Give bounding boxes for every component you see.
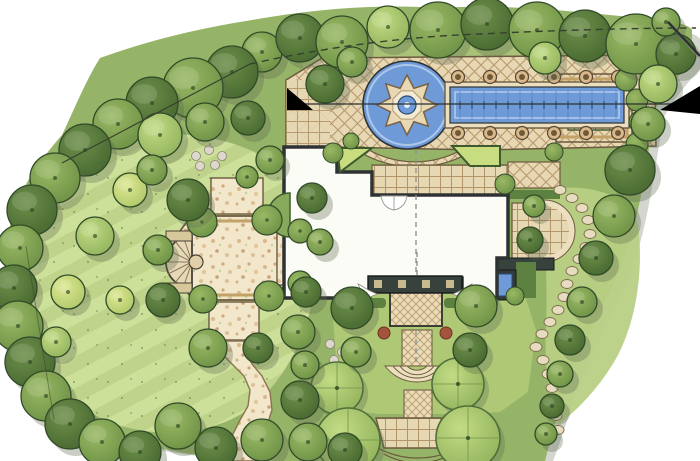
pebble	[218, 152, 227, 161]
planter-plant	[487, 130, 493, 136]
tree-trunk-dot	[214, 446, 218, 450]
site-plan-drawing	[0, 0, 700, 461]
tree-trunk-dot	[306, 440, 310, 444]
pool-jet	[555, 101, 557, 109]
tree-highlight	[2, 231, 25, 248]
pool-jet	[495, 101, 497, 109]
tree-trunk-dot	[558, 372, 562, 376]
pebble	[196, 162, 205, 171]
tree-highlight	[416, 10, 444, 31]
tree-highlight	[142, 119, 164, 136]
tree-trunk-dot	[303, 363, 307, 367]
stepping-stone	[561, 280, 573, 289]
tree-trunk-dot	[150, 168, 154, 172]
tree-trunk-dot	[30, 208, 34, 212]
shrub-ball	[545, 143, 563, 161]
tree-trunk-dot	[28, 360, 32, 364]
tree-trunk-dot	[628, 168, 632, 172]
accent-shrub-right	[440, 327, 452, 339]
shrub-center-dot	[466, 436, 470, 440]
tree-trunk-dot	[150, 101, 154, 105]
clipped-tree-dot	[267, 294, 271, 298]
tree-trunk-dot	[186, 198, 190, 202]
tree-trunk-dot	[18, 246, 22, 250]
tree-trunk-dot	[436, 28, 440, 32]
tree-trunk-dot	[44, 394, 48, 398]
tree-trunk-dot	[298, 36, 302, 40]
planter-plant	[551, 130, 557, 136]
tree-trunk-dot	[485, 22, 489, 26]
tree-trunk-dot	[580, 300, 584, 304]
shrub-ball	[495, 174, 515, 194]
tree-trunk-dot	[191, 86, 195, 90]
tree-trunk-dot	[268, 158, 272, 162]
stepping-stone	[576, 204, 588, 213]
clipped-tree-dot	[298, 229, 302, 233]
pool-jet	[507, 101, 509, 109]
clipped-tree-dot	[201, 297, 205, 301]
tree-highlight	[50, 406, 75, 425]
tree-trunk-dot	[544, 432, 548, 436]
tree-trunk-dot	[594, 256, 598, 260]
tree-highlight	[12, 192, 37, 211]
stepping-stone	[552, 306, 564, 315]
planter-plant	[519, 130, 525, 136]
pavilion-post-3	[422, 280, 430, 288]
tree-trunk-dot	[138, 450, 142, 454]
pool-jet	[615, 101, 617, 109]
tree-trunk-dot	[298, 398, 302, 402]
arbor-wing-north	[166, 231, 192, 241]
tree-trunk-dot	[246, 116, 250, 120]
pergola-walk-upper	[390, 292, 442, 326]
tree-highlight	[169, 66, 199, 89]
tree-trunk-dot	[256, 346, 260, 350]
planter-plant	[519, 74, 525, 80]
tree-trunk-dot	[350, 60, 354, 64]
tree-trunk-dot	[318, 240, 322, 244]
pebble	[211, 161, 220, 170]
tree-trunk-dot	[161, 298, 165, 302]
tree-trunk-dot	[118, 298, 122, 302]
tree-trunk-dot	[634, 42, 638, 46]
tree-trunk-dot	[323, 82, 327, 86]
stepping-stone	[530, 343, 542, 352]
tree-trunk-dot	[128, 188, 132, 192]
tree-trunk-dot	[646, 122, 650, 126]
tree-highlight	[131, 84, 157, 104]
pavilion-post-2	[398, 280, 406, 288]
tree-highlight	[564, 17, 590, 37]
stepping-stone	[582, 216, 594, 225]
tree-trunk-dot	[532, 204, 536, 208]
arbor-urn	[189, 255, 203, 269]
shrub-center-dot	[456, 382, 460, 386]
tree-trunk-dot	[343, 448, 347, 452]
walk-lower	[404, 390, 432, 418]
tree-highlight	[612, 22, 642, 45]
tree-trunk-dot	[656, 82, 660, 86]
shrub-ball	[323, 143, 343, 163]
star-fountain	[377, 75, 437, 135]
pavilion-post-1	[374, 280, 382, 288]
tree-highlight	[64, 131, 90, 151]
east-lattice-terrace	[508, 162, 560, 188]
tree-trunk-dot	[176, 424, 180, 428]
tree-trunk-dot	[583, 34, 587, 38]
pool-jet	[519, 101, 521, 109]
tree-trunk-dot	[310, 196, 314, 200]
accent-shrub-left	[378, 327, 390, 339]
tree-trunk-dot	[550, 404, 554, 408]
tree-trunk-dot	[612, 214, 616, 218]
tree-highlight	[371, 12, 392, 28]
tree-trunk-dot	[158, 133, 162, 137]
tree-highlight	[35, 160, 60, 179]
pool-jet	[471, 101, 473, 109]
shrub-ball	[506, 287, 524, 305]
tree-highlight	[459, 291, 480, 307]
tree-trunk-dot	[260, 438, 264, 442]
tree-trunk-dot	[674, 52, 678, 56]
tree-trunk-dot	[350, 306, 354, 310]
tree-trunk-dot	[296, 330, 300, 334]
tree-highlight	[245, 425, 266, 441]
tree-trunk-dot	[54, 340, 58, 344]
tree-trunk-dot	[340, 40, 344, 44]
pool-jet	[483, 101, 485, 109]
pebble	[192, 152, 201, 161]
stepping-stone	[566, 194, 578, 203]
planter-plant	[455, 74, 461, 80]
tree-trunk-dot	[68, 422, 72, 426]
landscape-plan-canvas	[0, 0, 700, 461]
clipped-tree-dot	[245, 175, 249, 179]
stepping-stone	[537, 356, 549, 365]
tree-trunk-dot	[16, 324, 20, 328]
pool-jet	[591, 101, 593, 109]
clipped-tree-dot	[265, 218, 269, 222]
walk-mid	[402, 330, 432, 366]
stepping-stone	[536, 330, 548, 339]
tree-trunk-dot	[260, 50, 264, 54]
fountain-jet	[404, 102, 410, 108]
tree-highlight	[335, 293, 356, 309]
tree-trunk-dot	[66, 290, 70, 294]
tree-trunk-dot	[203, 120, 207, 124]
pool-jet	[603, 101, 605, 109]
pool-jet	[543, 101, 545, 109]
tree-trunk-dot	[93, 234, 97, 238]
planter-plant	[487, 74, 493, 80]
tree-highlight	[123, 437, 144, 453]
pebble	[326, 340, 335, 349]
tree-highlight	[160, 409, 183, 426]
tree-trunk-dot	[474, 304, 478, 308]
tree-trunk-dot	[53, 176, 57, 180]
tree-highlight	[597, 201, 618, 217]
tree-trunk-dot	[116, 122, 120, 126]
tree-highlight	[199, 433, 220, 449]
pool-complex	[363, 61, 629, 149]
tree-highlight	[610, 152, 635, 171]
stepping-stone	[566, 267, 578, 276]
planter-plant	[583, 130, 589, 136]
planter-plant	[455, 130, 461, 136]
tree-trunk-dot	[304, 290, 308, 294]
pool-jet	[567, 101, 569, 109]
stepping-stone	[544, 318, 556, 327]
tree-trunk-dot	[568, 338, 572, 342]
tree-trunk-dot	[12, 286, 16, 290]
tree-highlight	[98, 106, 123, 125]
tree-trunk-dot	[468, 348, 472, 352]
shrub-center-dot	[335, 386, 339, 390]
tree-highlight	[515, 10, 543, 31]
stepping-stone	[584, 230, 596, 239]
tree-trunk-dot	[528, 238, 532, 242]
stepping-stone	[554, 186, 566, 195]
tree-highlight	[466, 5, 492, 25]
tree-trunk-dot	[543, 56, 547, 60]
pavilion-post-4	[446, 280, 454, 288]
pool-jet	[531, 101, 533, 109]
tree-trunk-dot	[156, 248, 160, 252]
pool-jet	[579, 101, 581, 109]
tree-highlight	[321, 23, 347, 43]
pool-jet	[459, 101, 461, 109]
shrub-ball	[343, 133, 359, 149]
tree-highlight	[281, 20, 305, 38]
planter-plant	[583, 74, 589, 80]
upper-terrace	[372, 165, 508, 195]
tree-trunk-dot	[386, 25, 390, 29]
tree-trunk-dot	[100, 440, 104, 444]
tree-highlight	[84, 425, 107, 442]
planter-plant	[615, 130, 621, 136]
tree-trunk-dot	[354, 350, 358, 354]
tree-trunk-dot	[664, 20, 668, 24]
tree-trunk-dot	[206, 346, 210, 350]
tree-highlight	[10, 344, 35, 363]
tree-highlight	[171, 185, 192, 201]
